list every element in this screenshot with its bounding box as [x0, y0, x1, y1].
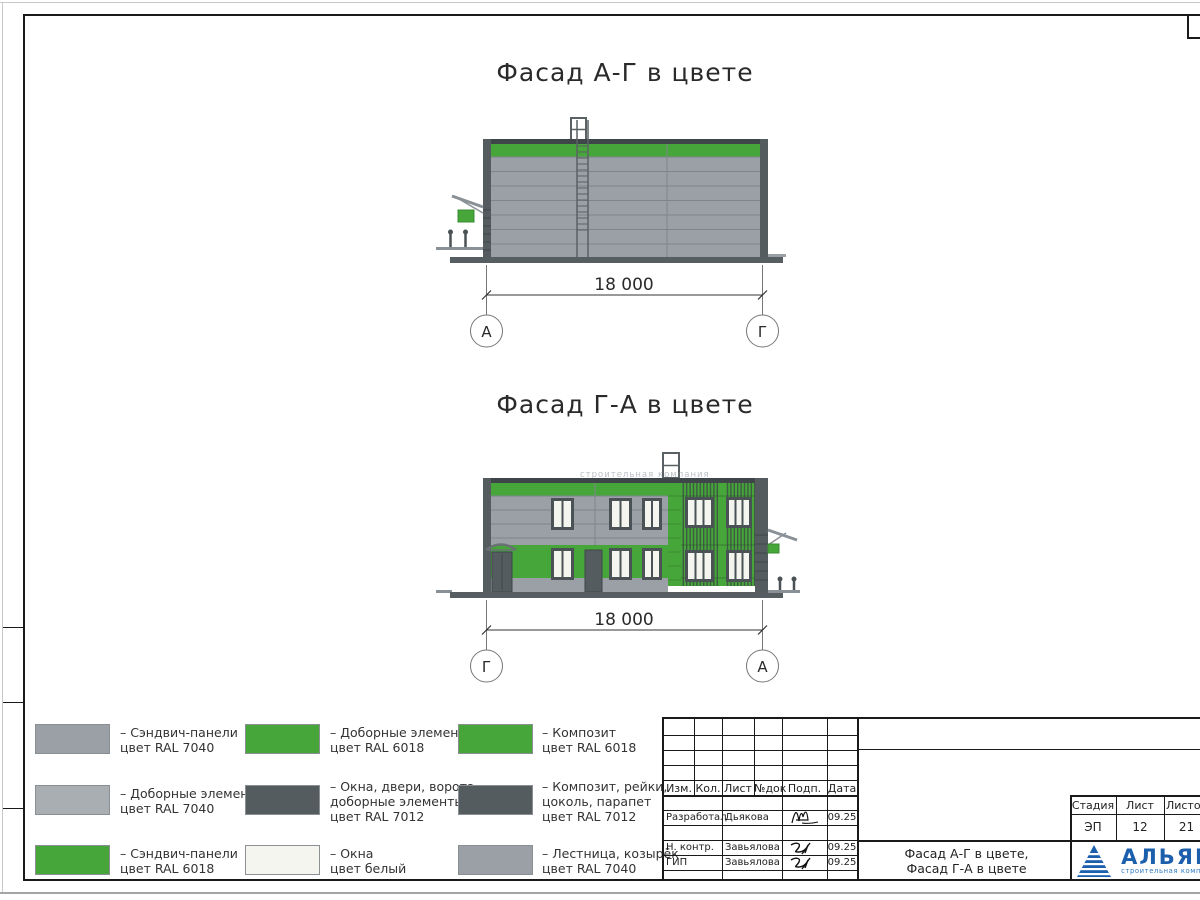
signage-box — [768, 544, 779, 553]
svg-text:А: А — [757, 658, 768, 676]
legend-swatch — [458, 845, 533, 875]
facade2-title: Фасад Г-А в цвете — [430, 390, 820, 419]
legend-swatch — [458, 785, 533, 815]
tb-line — [1070, 814, 1200, 815]
legend-label: – Лестница, козырёкцвет RAL 7040 — [542, 846, 679, 876]
sheet-label: Лист — [1116, 799, 1164, 812]
title-block: Изм. Кол. Лист №док Подп. Дата Разработа… — [662, 717, 1200, 880]
axis-bubble-right: Г — [747, 315, 779, 347]
frame-margin-cell-line — [3, 627, 24, 628]
tb-line — [664, 810, 857, 811]
tb-line — [664, 825, 857, 826]
legend-swatch — [35, 724, 110, 754]
right-canopy — [768, 530, 797, 545]
frame-corner-box — [1187, 16, 1200, 39]
sheets-label: Листов — [1164, 799, 1200, 812]
signage-box — [458, 210, 474, 222]
tb-date: 09.25 — [827, 842, 857, 853]
sheet-edge-left — [2, 2, 3, 893]
tb-header-list: Лист — [722, 782, 754, 795]
sheets-value: 21 — [1164, 820, 1200, 834]
svg-text:Г: Г — [482, 658, 491, 676]
tb-line — [664, 795, 857, 797]
facade1-building — [483, 139, 768, 257]
frame-top — [23, 14, 1200, 16]
sheet-edge-bottom — [0, 892, 1200, 894]
signature — [788, 807, 824, 825]
svg-text:Г: Г — [758, 323, 767, 341]
tb-line — [857, 719, 859, 880]
tb-line — [664, 780, 857, 781]
tb-line — [664, 750, 857, 751]
dimension-text: 18 000 — [594, 610, 653, 630]
legend-label: – Доборные элементыцвет RAL 6018 — [330, 725, 476, 755]
roof-hatch — [571, 118, 586, 141]
tb-role: Н. контр. — [666, 842, 714, 853]
tb-date: 09.25 — [827, 812, 857, 823]
tb-line — [857, 749, 1200, 750]
tb-line — [664, 855, 857, 856]
legend-swatch — [245, 724, 320, 754]
legend-swatch — [458, 724, 533, 754]
drawing-sheet: Фасад А-Г в цвете — [0, 0, 1200, 900]
tb-header-izm: Изм. — [664, 782, 694, 795]
signature — [788, 855, 824, 870]
legend-label: – Сэндвич-панелицвет RAL 6018 — [120, 846, 238, 876]
axis-bubble-right: А — [747, 650, 779, 682]
tb-header-podp: Подп. — [782, 782, 827, 795]
bollards — [778, 577, 796, 592]
logo-subtitle: строительная компания — [1121, 867, 1200, 875]
svg-text:А: А — [481, 323, 492, 341]
legend-label: – Доборные элементыцвет RAL 7040 — [120, 786, 266, 816]
tb-name: Завьялова — [725, 857, 780, 868]
legend-label: – Окнацвет белый — [330, 846, 406, 876]
legend-swatch — [245, 845, 320, 875]
document-title: Фасад А-Г в цвете, Фасад Г-А в цвете — [860, 846, 1073, 876]
dimension-text: 18 000 — [594, 275, 653, 295]
tb-line — [664, 870, 857, 871]
tb-line — [664, 765, 857, 766]
bollards — [449, 230, 468, 247]
legend-label: – Сэндвич-панелицвет RAL 7040 — [120, 725, 238, 755]
tb-line — [664, 735, 857, 736]
frame-left — [23, 14, 25, 881]
axis-bubble-left: Г — [471, 650, 503, 682]
tb-line — [1070, 795, 1200, 797]
tb-header-ndok: №док — [754, 782, 782, 795]
frame-margin-cell-line — [3, 808, 24, 809]
legend-swatch — [35, 785, 110, 815]
tb-role: ГИП — [666, 857, 687, 868]
logo-name: АЛЬЯНС — [1121, 847, 1200, 867]
facade1-drawing: 18 000 А Г — [430, 110, 820, 355]
frame-margin-cell-line — [3, 702, 24, 703]
legend-label: – Окна, двери, ворота,доборные элементыц… — [330, 779, 479, 824]
stage-label: Стадия — [1070, 799, 1116, 812]
tb-header-kol: Кол. — [694, 782, 722, 795]
tb-name: Завьялова — [725, 842, 780, 853]
tb-line — [857, 840, 1200, 842]
logo-pyramid-icon — [1077, 845, 1111, 877]
company-logo: АЛЬЯНС строительная компания — [1077, 845, 1200, 880]
sheet-edge-top — [0, 2, 1200, 3]
tb-date: 09.25 — [827, 857, 857, 868]
axis-bubble-left: А — [471, 315, 503, 347]
stage-value: ЭП — [1070, 820, 1116, 834]
legend-label: – Композит, рейки,цоколь, парапетцвет RA… — [542, 779, 667, 824]
facade2-drawing: строительная компания — [430, 440, 820, 690]
legend-swatch — [35, 845, 110, 875]
door-2 — [585, 550, 602, 592]
tb-name: Дьякова — [725, 812, 769, 823]
tb-line — [664, 840, 857, 841]
tb-role: Разработал — [666, 812, 727, 823]
sheet-value: 12 — [1116, 820, 1164, 834]
tb-header-data: Дата — [827, 782, 857, 795]
signature — [788, 840, 824, 855]
legend-swatch — [245, 785, 320, 815]
legend-label: – Композитцвет RAL 6018 — [542, 725, 636, 755]
facade1-title: Фасад А-Г в цвете — [430, 58, 820, 87]
